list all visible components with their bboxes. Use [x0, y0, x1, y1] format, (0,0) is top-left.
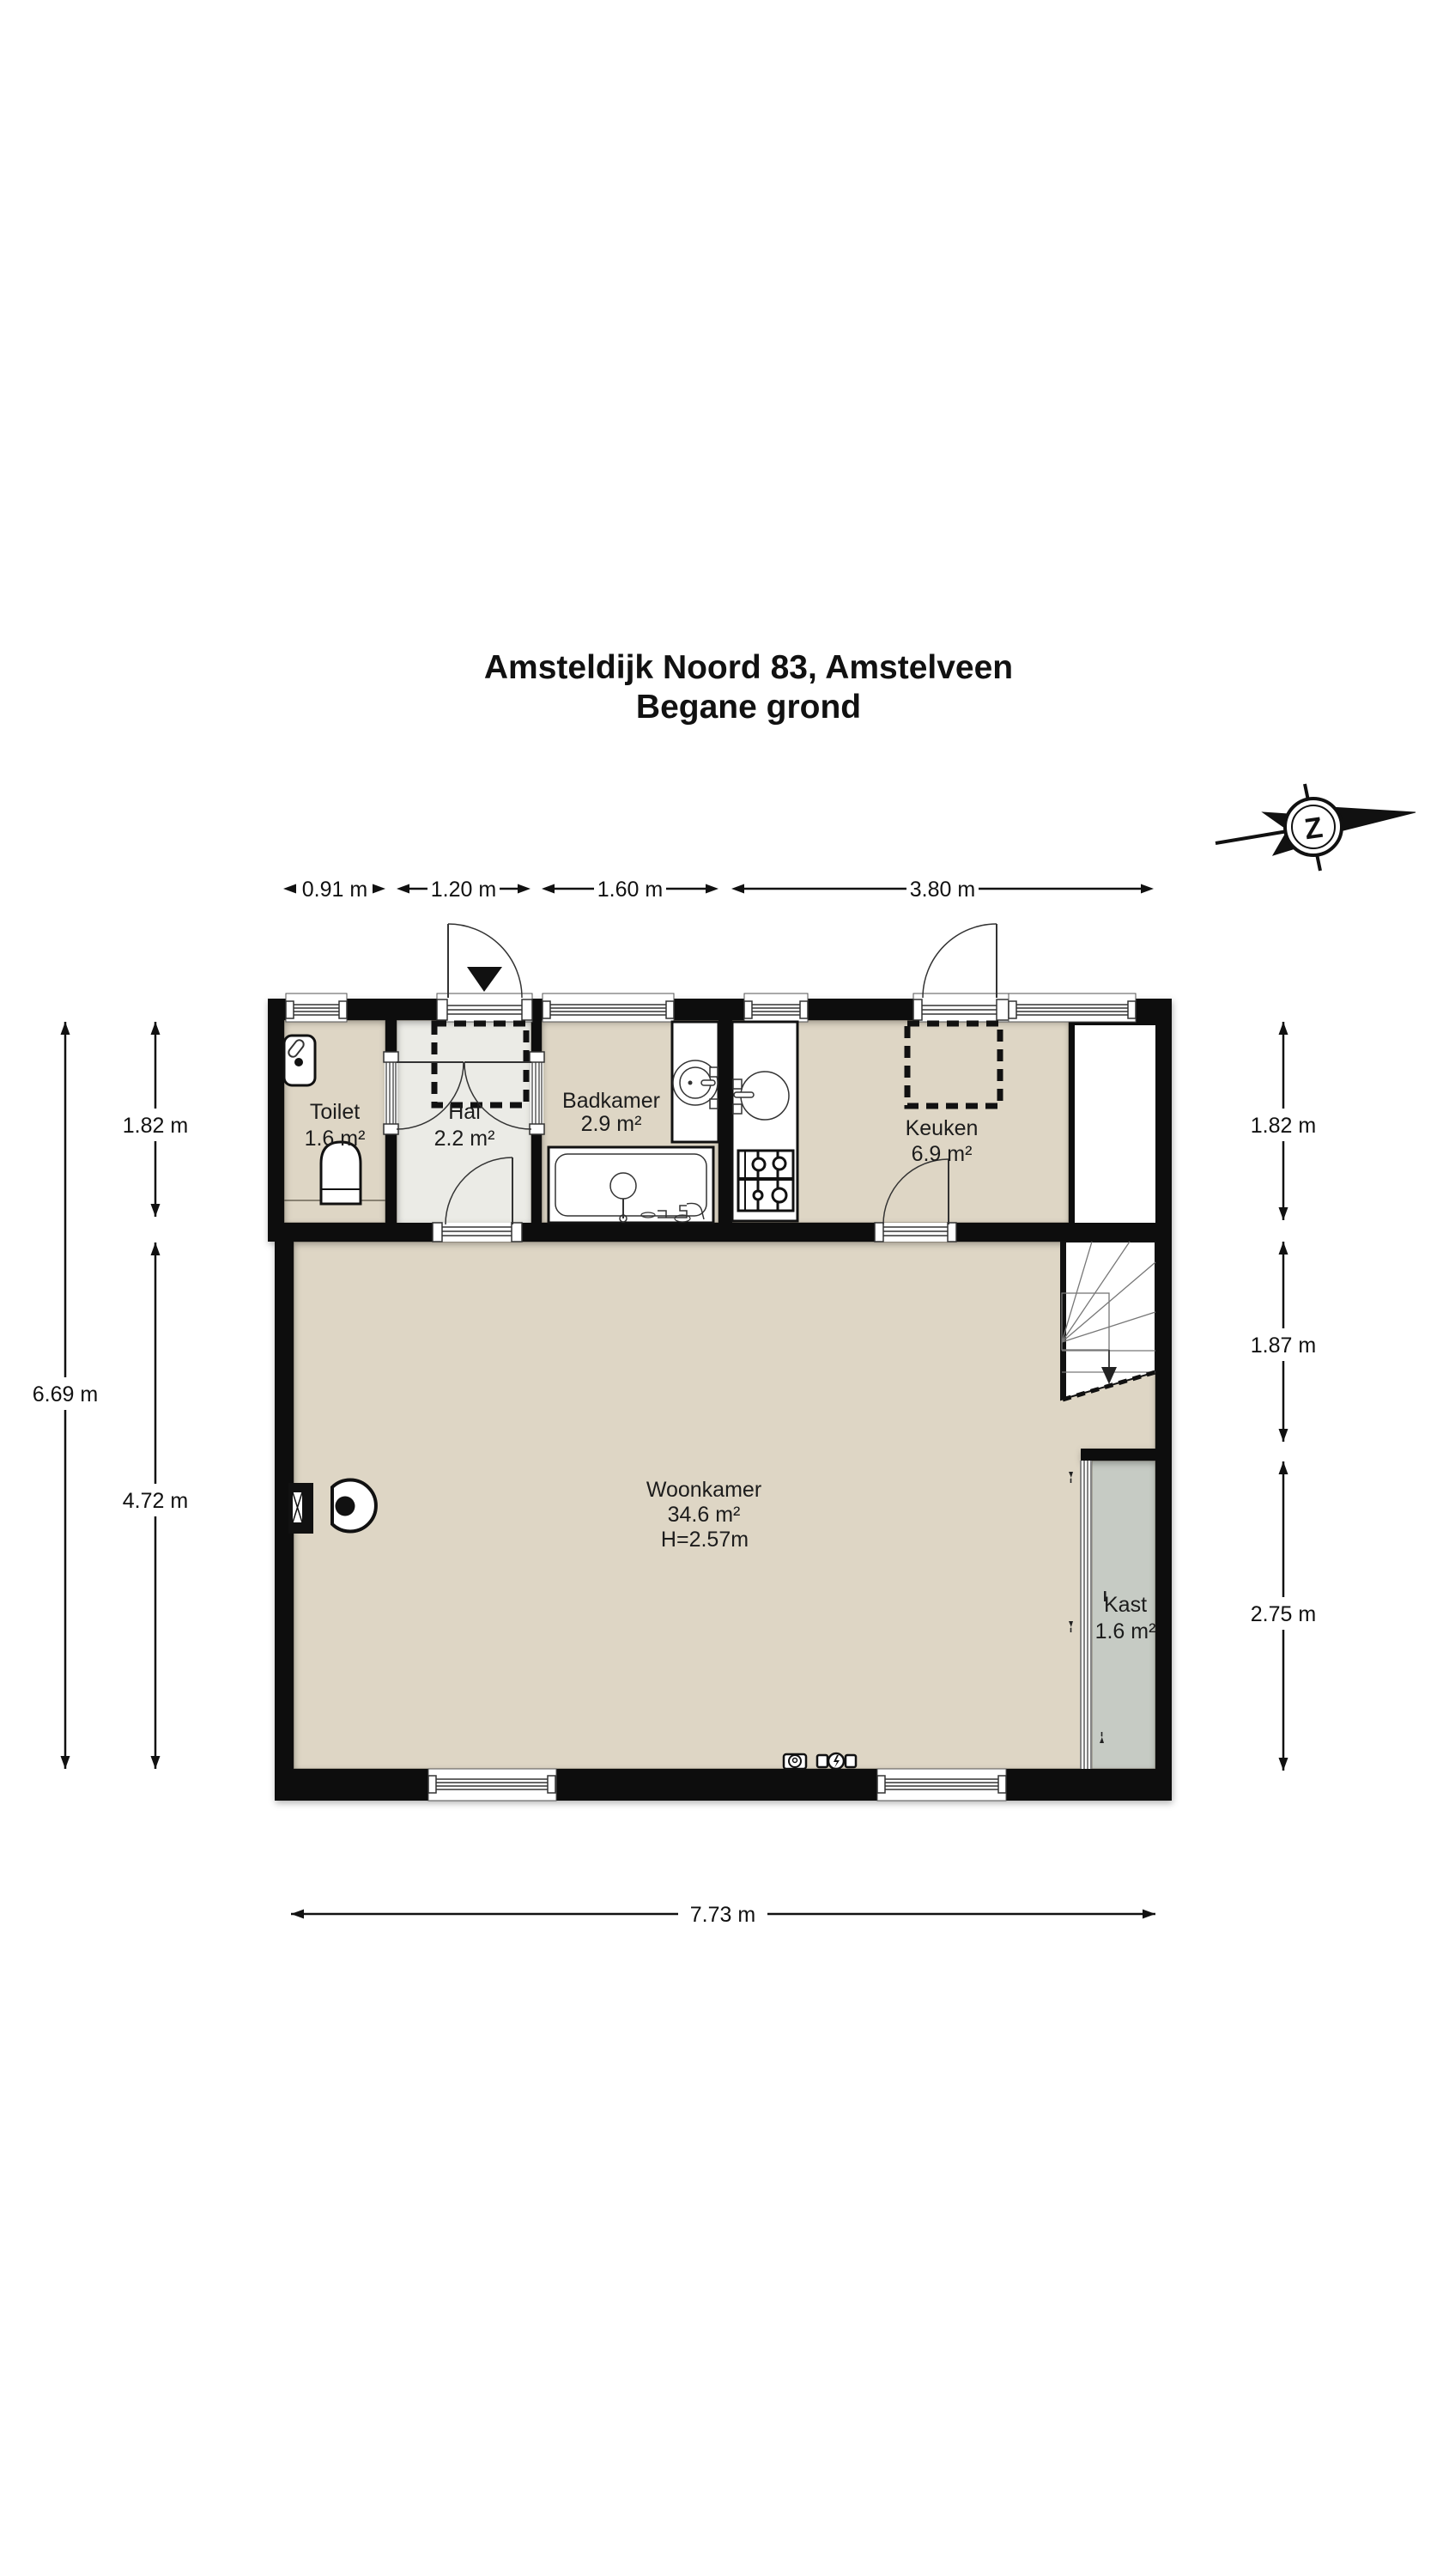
svg-text:1.6 m²: 1.6 m² [1095, 1619, 1156, 1643]
svg-text:H=2.57m: H=2.57m [661, 1528, 749, 1552]
svg-text:1.20 m: 1.20 m [431, 878, 496, 902]
svg-text:Toilet: Toilet [310, 1100, 360, 1124]
svg-text:2.2 m²: 2.2 m² [434, 1127, 495, 1151]
svg-text:2.9 m²: 2.9 m² [581, 1112, 642, 1136]
svg-text:Woonkamer: Woonkamer [646, 1478, 761, 1502]
svg-text:Kast: Kast [1104, 1593, 1147, 1617]
svg-text:Keuken: Keuken [906, 1116, 979, 1140]
svg-text:1.82 m: 1.82 m [1251, 1114, 1316, 1138]
svg-text:34.6 m²: 34.6 m² [668, 1503, 741, 1527]
svg-text:1.82 m: 1.82 m [123, 1114, 188, 1138]
svg-text:Begane grond: Begane grond [636, 689, 861, 726]
svg-text:6.69 m: 6.69 m [33, 1382, 98, 1406]
svg-text:4.72 m: 4.72 m [123, 1489, 188, 1513]
svg-text:1.60 m: 1.60 m [597, 878, 663, 902]
svg-text:3.80 m: 3.80 m [910, 878, 975, 902]
svg-text:6.9 m²: 6.9 m² [912, 1142, 973, 1166]
svg-text:2.75 m: 2.75 m [1251, 1602, 1316, 1626]
svg-text:Amsteldijk Noord 83, Amstelvee: Amsteldijk Noord 83, Amstelveen [484, 649, 1013, 686]
svg-text:7.73 m: 7.73 m [690, 1903, 755, 1927]
svg-text:1.87 m: 1.87 m [1251, 1334, 1316, 1358]
svg-text:0.91 m: 0.91 m [302, 878, 367, 902]
svg-text:1.6 m²: 1.6 m² [305, 1127, 366, 1151]
svg-text:Hal: Hal [448, 1100, 481, 1124]
svg-text:Badkamer: Badkamer [562, 1089, 660, 1113]
